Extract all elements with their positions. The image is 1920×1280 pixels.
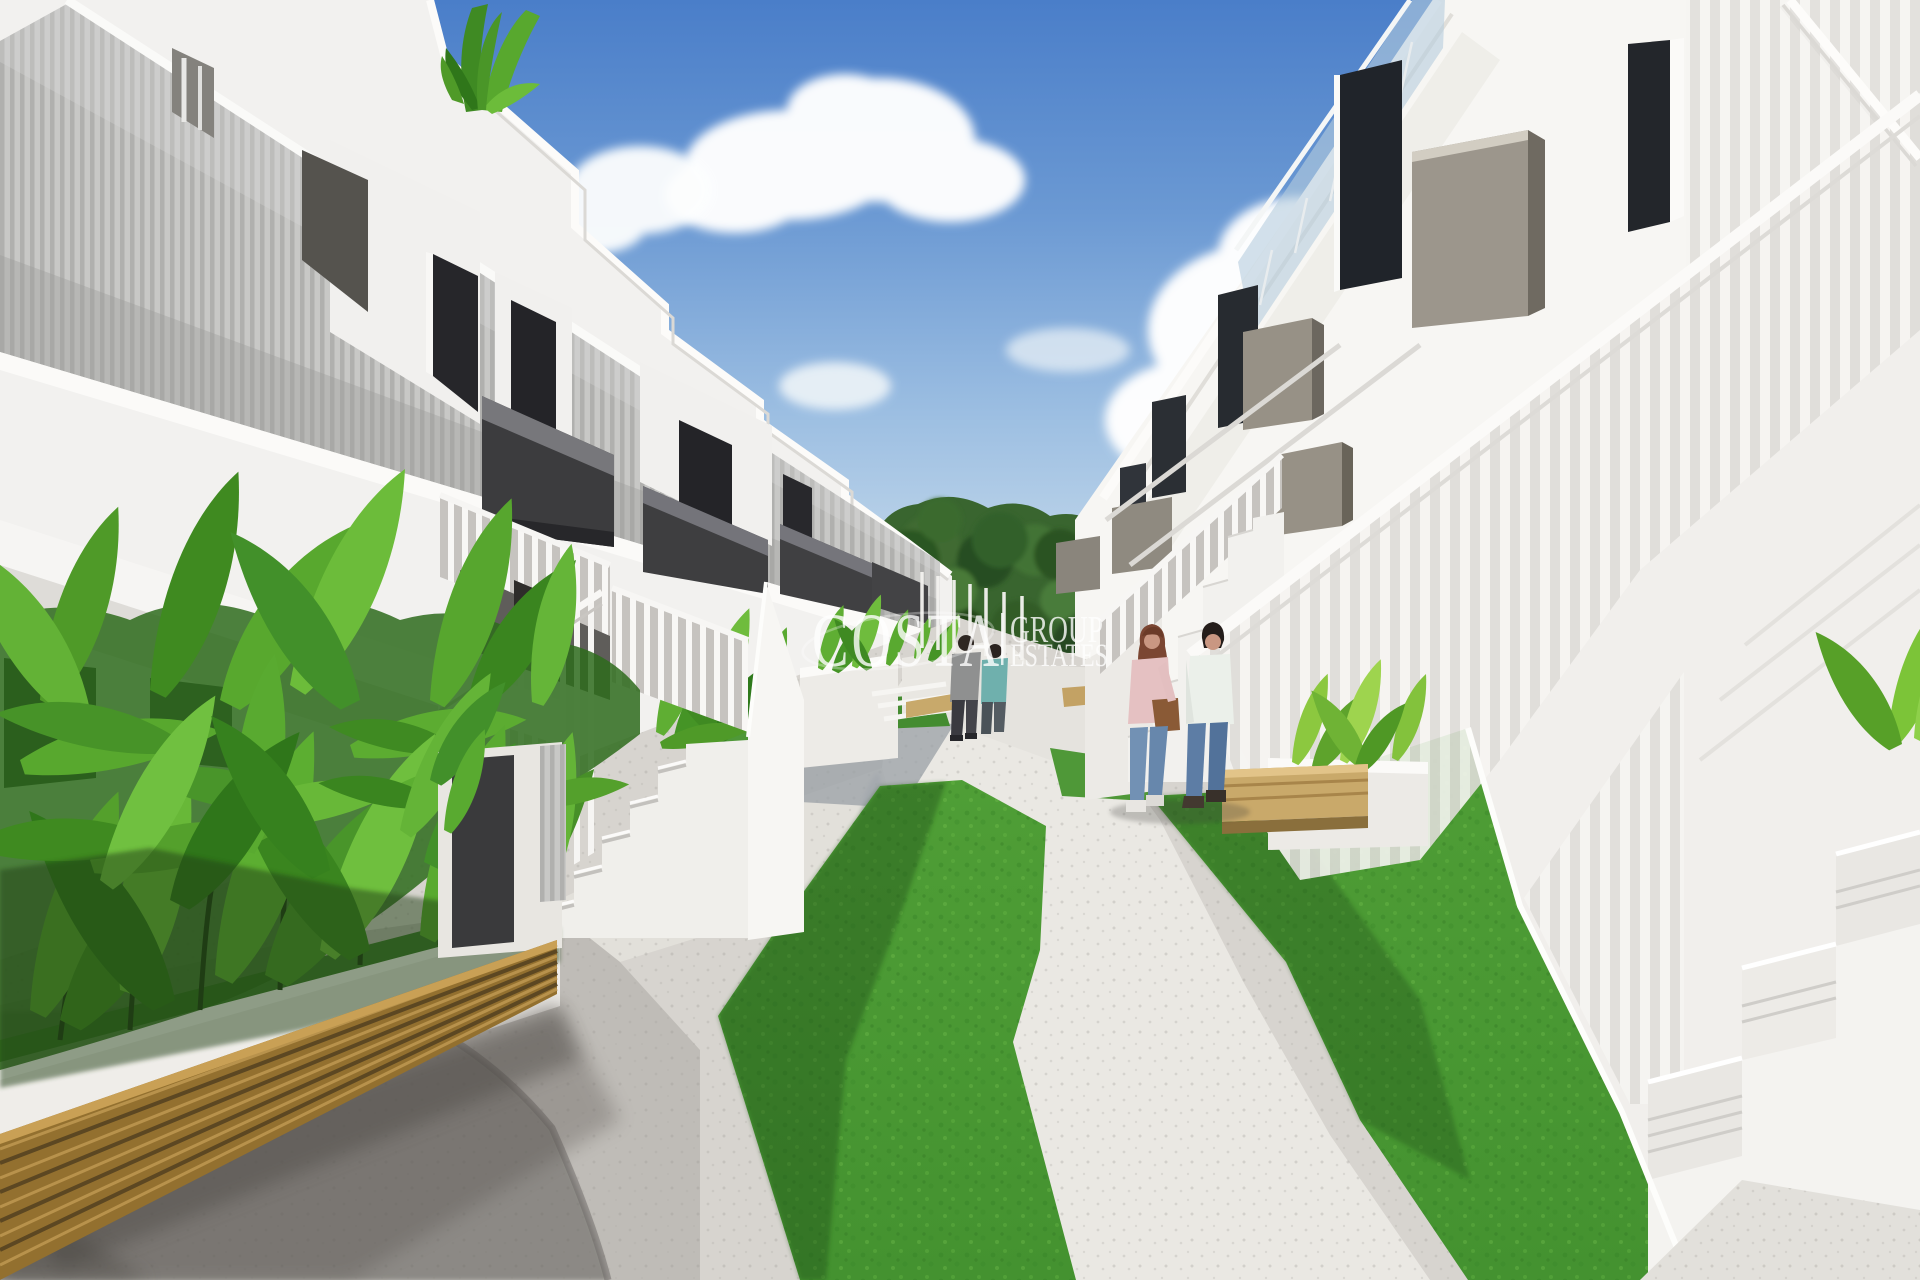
svg-text:COSTA: COSTA	[812, 599, 1002, 683]
svg-text:ESTATES: ESTATES	[1010, 638, 1108, 674]
